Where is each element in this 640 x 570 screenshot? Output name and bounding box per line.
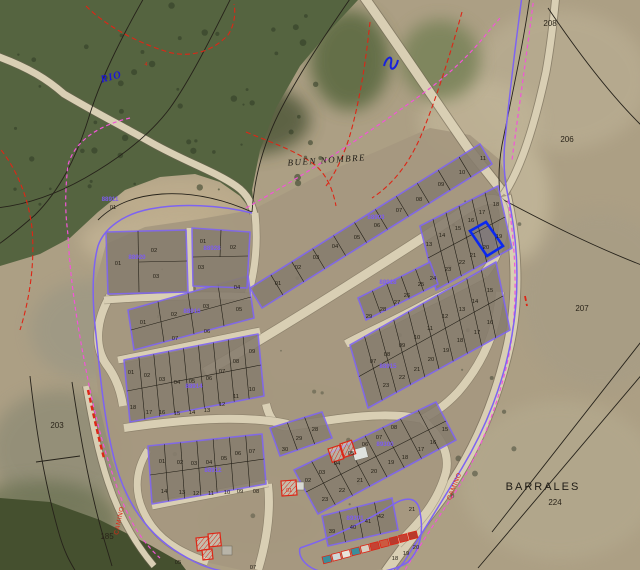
red-hatched-building — [196, 537, 209, 551]
block-code: 88928 — [203, 245, 221, 252]
lot-number: 09 — [438, 182, 444, 188]
lot-number: 40 — [350, 525, 356, 531]
lot-number: 03 — [159, 377, 165, 383]
block-88928 — [192, 228, 250, 288]
lot-number: 15 — [455, 226, 461, 232]
lot-number: 07 — [396, 208, 402, 214]
lot-number: 06 — [362, 442, 368, 448]
lot-number: 25 — [418, 282, 424, 288]
lot-number: 14 — [189, 410, 196, 416]
house-roof — [379, 539, 389, 548]
lot-number: 04 — [206, 460, 213, 466]
block-code: 88915 — [379, 363, 397, 370]
lot-number: 19 — [443, 348, 449, 354]
house-roof — [322, 555, 332, 564]
lot-number: 26 — [404, 293, 410, 299]
lot-number: 19 — [388, 460, 394, 466]
house-roof — [332, 552, 342, 561]
lot-number: 21 — [414, 367, 420, 373]
house-roof — [408, 531, 418, 540]
lot-number: 18 — [457, 338, 463, 344]
lot-number: 08 — [384, 352, 390, 358]
lot-number: 08 — [391, 425, 397, 431]
block-code: 88911 — [102, 196, 119, 203]
lot-number: 10 — [459, 170, 465, 176]
lot-number: 20 — [428, 357, 434, 363]
lot-number: 08 — [416, 197, 422, 203]
lot-number: 06 — [235, 451, 241, 457]
lot-number: 08 — [233, 359, 239, 365]
lot-number: 11 — [233, 394, 239, 400]
lot-number: 13 — [426, 242, 432, 248]
lot-number: 09 — [249, 349, 255, 355]
lot-number: 05 — [221, 456, 227, 462]
lot-number: 17 — [418, 447, 424, 453]
lot-number: 05 — [348, 451, 354, 457]
lot-number: 10 — [414, 335, 420, 341]
lot-number: 08 — [253, 489, 259, 495]
lot-number: 23 — [322, 497, 328, 503]
place-label-21: 21 — [409, 507, 415, 513]
lot-number: 03 — [203, 304, 209, 310]
lot-number: 13 — [459, 307, 465, 313]
house-roof — [389, 536, 399, 545]
lot-number: 16 — [468, 218, 474, 224]
lot-number: 22 — [339, 488, 345, 494]
lot-number: 03 — [153, 274, 159, 280]
place-label-05: 05 — [175, 560, 181, 566]
lot-number: 28 — [380, 307, 386, 313]
place-label-01: 01 — [286, 488, 292, 494]
lot-number: 01 — [110, 205, 116, 211]
lot-number: 20 — [413, 545, 419, 551]
lot-number: 09 — [399, 343, 405, 349]
lot-number: 03 — [191, 461, 197, 467]
block-code: 89300 — [376, 441, 394, 448]
lot-number: 24 — [430, 276, 437, 282]
lot-number: 15 — [487, 288, 493, 294]
lot-number: 02 — [144, 373, 150, 379]
lot-number: 04 — [334, 461, 341, 467]
lot-number: 10 — [224, 490, 230, 496]
lot-number: 19 — [496, 234, 502, 240]
lot-number: 14 — [472, 299, 479, 305]
lot-number: 17 — [146, 410, 152, 416]
house-roof — [351, 547, 361, 556]
lot-number: 22 — [399, 375, 405, 381]
lot-number: 39 — [329, 529, 335, 535]
lot-number: 02 — [305, 478, 311, 484]
place-label-203: 203 — [50, 421, 64, 430]
block-code: 88912 — [204, 467, 222, 474]
lot-number: 27 — [394, 300, 400, 306]
block-code: 88918 — [379, 279, 397, 286]
lot-number: 16 — [430, 440, 436, 446]
lot-number: 21 — [470, 253, 476, 259]
lot-number: 12 — [193, 491, 199, 497]
lot-number: 03 — [198, 265, 204, 271]
lot-number: 13 — [179, 490, 185, 496]
place-label-185: 185 — [100, 532, 114, 541]
lot-number: 04 — [332, 244, 339, 250]
lot-number: 11 — [208, 491, 214, 497]
map-canvas[interactable]: 0102030405060708091011889031314151617181… — [0, 0, 640, 570]
lot-number: 07 — [249, 449, 255, 455]
lot-number: 01 — [115, 261, 121, 267]
lot-number: 15 — [174, 411, 180, 417]
lot-number: 17 — [474, 330, 480, 336]
lot-number: 02 — [171, 312, 177, 318]
lot-number: 01 — [159, 459, 165, 465]
place-label-07: 07 — [250, 565, 256, 570]
place-label-206: 206 — [560, 135, 574, 144]
lot-number: 18 — [402, 455, 408, 461]
lot-number: 04 — [174, 380, 181, 386]
map-viewport[interactable]: 0102030405060708091011889031314151617181… — [0, 0, 640, 570]
lot-number: 01 — [275, 281, 281, 287]
lot-number: 17 — [479, 210, 485, 216]
lot-number: 03 — [319, 470, 325, 476]
lot-number: 07 — [219, 369, 225, 375]
lot-number: 18 — [493, 202, 499, 208]
lot-number: 02 — [230, 245, 236, 251]
lot-number: 10 — [249, 387, 255, 393]
red-hatched-building — [202, 549, 213, 560]
lot-number: 02 — [295, 265, 301, 271]
lot-number: 06 — [374, 223, 380, 229]
red-hatched-building — [208, 533, 221, 547]
lot-number: 15 — [442, 427, 448, 433]
lot-number: 30 — [282, 447, 288, 453]
lot-number: 20 — [483, 245, 489, 251]
lot-number: 03 — [313, 255, 319, 261]
building — [296, 482, 304, 490]
lot-number: 14 — [161, 489, 168, 495]
lot-number: 18 — [392, 556, 398, 562]
building — [222, 546, 232, 555]
lot-number: 12 — [442, 314, 448, 320]
place-label-207: 207 — [575, 304, 589, 313]
place-label-4: 4 — [144, 62, 147, 68]
lot-number: 05 — [354, 235, 360, 241]
lot-number: 23 — [383, 383, 389, 389]
block-code: 88903 — [367, 214, 385, 221]
block-code: 88916 — [183, 308, 201, 315]
lot-number: 41 — [365, 519, 371, 525]
lot-number: 09 — [237, 489, 243, 495]
house-roof — [360, 544, 370, 553]
block-code: 88914 — [185, 383, 203, 390]
lot-number: 29 — [296, 436, 302, 442]
lot-number: 05 — [236, 307, 242, 313]
place-label-224: 224 — [548, 498, 562, 507]
lot-number: 16 — [487, 320, 493, 326]
lot-number: 21 — [357, 478, 363, 484]
lot-number: 29 — [366, 314, 372, 320]
lot-number: 42 — [378, 514, 384, 520]
lot-number: 01 — [128, 370, 134, 376]
lot-number: 02 — [151, 248, 157, 254]
lot-number: 18 — [130, 405, 136, 411]
place-label-barrales: BARRALES — [506, 481, 581, 493]
lot-number: 20 — [371, 469, 377, 475]
house-roof — [370, 542, 380, 551]
lot-number: 23 — [445, 267, 451, 273]
house-roof — [398, 534, 408, 543]
lot-number: 06 — [206, 376, 212, 382]
lot-number: 06 — [204, 329, 210, 335]
block-code: 89301 — [346, 515, 364, 522]
place-label-208: 208 — [543, 19, 557, 28]
lot-number: 11 — [427, 326, 433, 332]
lot-number: 19 — [403, 551, 409, 557]
lot-number: 07 — [370, 359, 376, 365]
lot-number: 01 — [140, 320, 146, 326]
lot-number: 13 — [204, 408, 210, 414]
lot-number: 22 — [459, 260, 465, 266]
lot-number: 02 — [177, 460, 183, 466]
lot-number: 11 — [480, 156, 486, 162]
lot-number: 14 — [439, 233, 446, 239]
lot-number: 16 — [159, 410, 165, 416]
lot-number: 07 — [172, 336, 178, 342]
lot-number: 28 — [312, 427, 318, 433]
lot-number: 04 — [234, 285, 241, 291]
lot-number: 12 — [219, 402, 225, 408]
block-code: 88920 — [128, 254, 146, 261]
house-roof — [341, 550, 351, 559]
